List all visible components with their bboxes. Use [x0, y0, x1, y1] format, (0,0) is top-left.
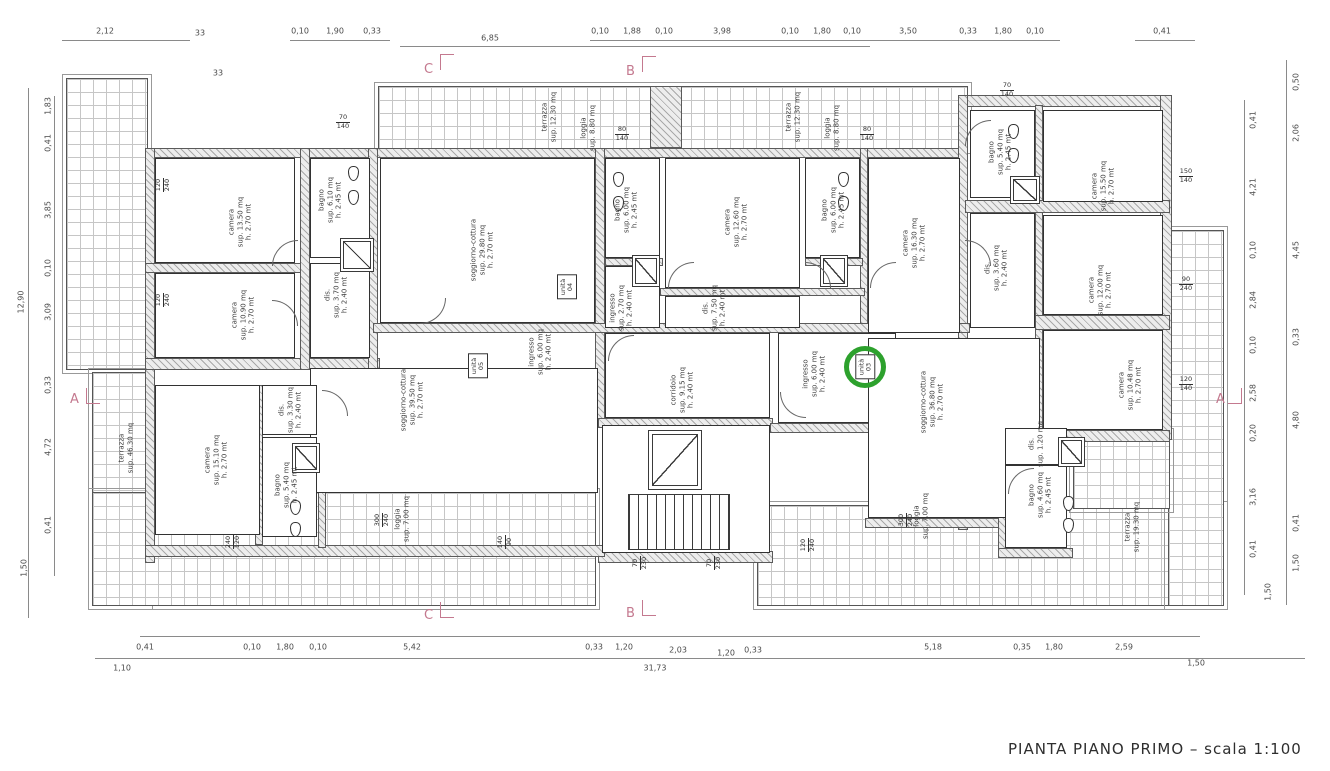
shower [632, 255, 660, 287]
loggia-label-700a: loggiasup. 7.00 mq [394, 496, 411, 542]
dim-label: 2,59 [1115, 643, 1133, 652]
elevator [648, 430, 702, 490]
room-camera-1350 [155, 158, 295, 263]
dimension-line [400, 46, 870, 47]
room-label-camera-1200: camerasup. 12.00 mqh. 2.70 mt [1087, 265, 1113, 316]
dim-label: 0,33 [1292, 328, 1301, 346]
dim-label: 1,80 [813, 27, 831, 36]
dim-label: 0,41 [1153, 27, 1171, 36]
room-label-bagno-540a: bagnosup. 5.40 mqh. 2.45 mt [987, 129, 1013, 175]
dim-label: 2,84 [1249, 291, 1258, 309]
section-marker-c-bottom: C [424, 608, 433, 623]
dim-label: 3,09 [44, 303, 53, 321]
misc-label-33: 33 [195, 29, 205, 38]
drawing-title: PIANTA PIANO PRIMO – scala 1:100 [1008, 740, 1302, 758]
window-tag: 300240 [374, 513, 390, 527]
section-line [440, 54, 454, 70]
terrace-label-1230a: terrazzasup. 12.30 mq [541, 92, 558, 143]
room-dis-750 [665, 296, 800, 328]
unit-tag-05: unità05 [468, 354, 488, 379]
dim-label: 1,50 [1187, 659, 1205, 668]
dim-label: 0,10 [781, 27, 799, 36]
dim-label: 3,16 [1249, 488, 1258, 506]
dim-label: 1,20 [615, 643, 633, 652]
dim-label: 2,12 [96, 27, 114, 36]
dim-label: 1,20 [717, 649, 735, 658]
dim-label: 1,50 [20, 559, 29, 577]
dim-label: 0,33 [44, 376, 53, 394]
wall [965, 95, 1172, 107]
floor-plan-canvas: camerasup. 13.50 mqh. 2.70 mt camerasup.… [0, 0, 1330, 771]
section-marker-a-left: A [70, 392, 79, 407]
room-label-sogg-2980: soggiorno-cotturasup. 29.80 mqh. 2.70 mt [469, 219, 495, 281]
wall [300, 148, 310, 370]
terrace-label-1930: terrazzasup. 19.30 mq [1124, 502, 1141, 553]
dim-label: 0,10 [843, 27, 861, 36]
dim-label: 0,10 [291, 27, 309, 36]
room-label-ingresso-270: ingressosup. 2.70 mqh. 2.40 mt [608, 285, 634, 331]
section-marker-b-top: B [626, 64, 635, 79]
window-tag: 90240 [1179, 276, 1193, 292]
room-label-camera-1630: camerasup. 16.30 mqh. 2.70 mt [901, 218, 927, 269]
window-tag: 80140 [615, 126, 629, 142]
dim-label: 5,42 [403, 643, 421, 652]
dimension-line [62, 40, 190, 41]
terrace-label-1230b: terrazzasup. 12.30 mq [785, 92, 802, 143]
dim-label: 1,90 [326, 27, 344, 36]
section-line [86, 388, 100, 404]
room-label-dis-360: dis.sup. 3.60 mqh. 2.40 mt [983, 245, 1009, 291]
section-line [440, 602, 454, 618]
section-line [1228, 388, 1242, 404]
room-label-camera-1510: camerasup. 15.10 mqh. 2.70 mt [203, 435, 229, 486]
section-line [642, 600, 656, 616]
window-tag: 120240 [155, 293, 171, 307]
wall [145, 148, 965, 158]
dim-label: 3,98 [713, 27, 731, 36]
wall [1035, 315, 1170, 330]
dim-label: 6,85 [481, 34, 499, 43]
dim-label: 0,10 [655, 27, 673, 36]
dimension-line [1135, 40, 1195, 41]
room-label-dis-120: dis.sup. 1.20 mq [1028, 421, 1045, 467]
dim-label: 0,10 [591, 27, 609, 36]
window-tag: 300240 [898, 513, 914, 527]
terrace-left-annex [66, 78, 148, 370]
dimension-line [140, 636, 1200, 637]
dim-label: 0,20 [1249, 424, 1258, 442]
dim-label: 0,41 [44, 134, 53, 152]
dim-label: 2,58 [1249, 384, 1258, 402]
wall [650, 86, 682, 148]
room-label-ingresso-600a: ingressosup. 6.00 mqh. 2.40 mt [527, 329, 553, 375]
room-label-dis-370: dis.sup. 3.70 mqh. 2.40 mt [323, 272, 349, 318]
shower [1058, 437, 1085, 467]
shower [340, 238, 374, 272]
section-marker-a-right: A [1216, 392, 1225, 407]
dim-label: 5,18 [924, 643, 942, 652]
dimension-line [95, 658, 1305, 659]
dim-label: 4,80 [1292, 411, 1301, 429]
room-label-camera-1090: camerasup. 10.90 mqh. 2.70 mt [230, 290, 256, 341]
wall [145, 148, 155, 563]
room-label-camera-1350: camerasup. 13.50 mqh. 2.70 mt [227, 197, 253, 248]
shower [1010, 176, 1040, 204]
room-label-dis-750: dis.sup. 7.50 mqh. 2.40 mt [701, 285, 727, 331]
dim-label: 0,41 [44, 516, 53, 534]
dim-label: 0,41 [1249, 111, 1258, 129]
loggia-label-880b: loggiasup. 8.80 mq [824, 105, 841, 151]
dim-label: 2,06 [1292, 124, 1301, 142]
dim-label: 0,41 [1292, 514, 1301, 532]
room-label-ingresso-600b: ingressosup. 6.00 mqh. 2.40 mt [801, 351, 827, 397]
room-label-camera-1550: camerasup. 15.50 mqh. 2.70 mt [1090, 161, 1116, 212]
dim-label: 1,88 [623, 27, 641, 36]
dimension-line [290, 40, 390, 41]
room-camera-1048 [1043, 330, 1163, 430]
window-tag: 70230 [632, 556, 648, 570]
room-label-dis-330: dis.sup. 3.30 mqh. 2.40 mt [277, 387, 303, 433]
dim-label: 0,50 [1292, 73, 1301, 91]
room-label-bagno-610: bagnosup. 6.10 mqh. 2.45 mt [317, 177, 343, 223]
dim-label: 2,03 [669, 646, 687, 655]
window-tag: 120240 [155, 178, 171, 192]
dim-label: 1,10 [113, 664, 131, 673]
room-label-bagno-600a: bagnosup. 6.00 mqh. 2.45 mt [613, 187, 639, 233]
dim-label: 3,85 [44, 201, 53, 219]
dim-label: 0,33 [744, 646, 762, 655]
dim-label: 4,45 [1292, 241, 1301, 259]
window-tag: 240120 [225, 535, 241, 549]
window-tag: 80140 [860, 126, 874, 142]
dim-label: 1,80 [1045, 643, 1063, 652]
room-label-bagno-540b: bagnosup. 5.40 mqh. 2.45 mt [273, 462, 299, 508]
window-tag: 70140 [1000, 82, 1014, 98]
dim-label: 0,35 [1013, 643, 1031, 652]
room-label-bagno-600b: bagnosup. 6.00 mqh. 2.45 mt [820, 187, 846, 233]
dim-label: 4,72 [44, 438, 53, 456]
dim-label: 1,80 [994, 27, 1012, 36]
window-tag: 150140 [1179, 168, 1193, 184]
dim-label: 1,50 [1264, 583, 1273, 601]
dim-label: 0,10 [309, 643, 327, 652]
room-label-corridoio-915: corridoiosup. 9.15 mqh. 2.40 mt [669, 367, 695, 413]
unit-tag-03: unità03 [855, 355, 875, 380]
room-label-sogg-3950: soggiorno-cotturasup. 39.50 mqh. 2.70 mt [399, 369, 425, 431]
room-label-bagno-460: bagnosup. 4.60 mqh. 2.45 mt [1027, 472, 1053, 518]
dim-label: 0,10 [1249, 336, 1258, 354]
terrace-right-strip [1168, 230, 1224, 606]
section-marker-b-bottom: B [626, 606, 635, 621]
section-marker-c-top: C [424, 62, 433, 77]
unit-tag-04: unità04 [557, 275, 577, 300]
terrace-label-4630: terrazzasup. 46.30 mq [118, 423, 135, 474]
dimension-line [1286, 60, 1287, 605]
dim-label: 0,10 [1249, 241, 1258, 259]
window-tag: 70230 [706, 556, 722, 570]
dim-label: 1,83 [44, 97, 53, 115]
dim-label: 12,90 [17, 291, 26, 314]
dim-label: 0,33 [959, 27, 977, 36]
window-tag: 70140 [336, 114, 350, 130]
wall [660, 288, 865, 296]
terrace-right-corner [1073, 432, 1170, 509]
dim-label: 1,50 [1292, 554, 1301, 572]
unit-03-highlight-circle: unità03 [844, 346, 886, 388]
staircase [628, 494, 730, 550]
room-label-camera-1048: camerasup. 10.48 mqh. 2.70 mt [1117, 360, 1143, 411]
window-tag: 120140 [1179, 376, 1193, 392]
dim-label: 0,41 [136, 643, 154, 652]
window-tag: 14090 [497, 535, 513, 549]
room-sogg-3950 [310, 368, 598, 493]
dim-label: 0,41 [1249, 540, 1258, 558]
dim-label: 0,10 [243, 643, 261, 652]
dim-label: 31,73 [644, 664, 667, 673]
dimension-line [28, 88, 29, 618]
window-tag: 120240 [800, 538, 816, 552]
dimension-line [54, 96, 55, 576]
loggia-label-700b: loggiasup. 7.00 mq [913, 493, 930, 539]
wall [860, 148, 868, 338]
wall [145, 545, 605, 557]
dim-label: 3,50 [899, 27, 917, 36]
dim-label: 1,80 [276, 643, 294, 652]
room-label-sogg-3680: soggiorno-cotturasup. 36.80 mqh. 2.70 mt [919, 371, 945, 433]
dim-label: 4,21 [1249, 178, 1258, 196]
dim-label: 0,33 [363, 27, 381, 36]
dimension-line [590, 40, 1060, 41]
misc-label-33: 33 [213, 69, 223, 78]
dim-label: 0,10 [44, 259, 53, 277]
room-label-camera-1260: camerasup. 12.60 mqh. 2.70 mt [723, 197, 749, 248]
dimension-line [1244, 100, 1245, 595]
dim-label: 0,33 [585, 643, 603, 652]
dim-label: 0,10 [1026, 27, 1044, 36]
loggia-label-880a: loggiasup. 8.80 mq [580, 105, 597, 151]
wall [998, 548, 1073, 558]
section-line [642, 56, 656, 72]
